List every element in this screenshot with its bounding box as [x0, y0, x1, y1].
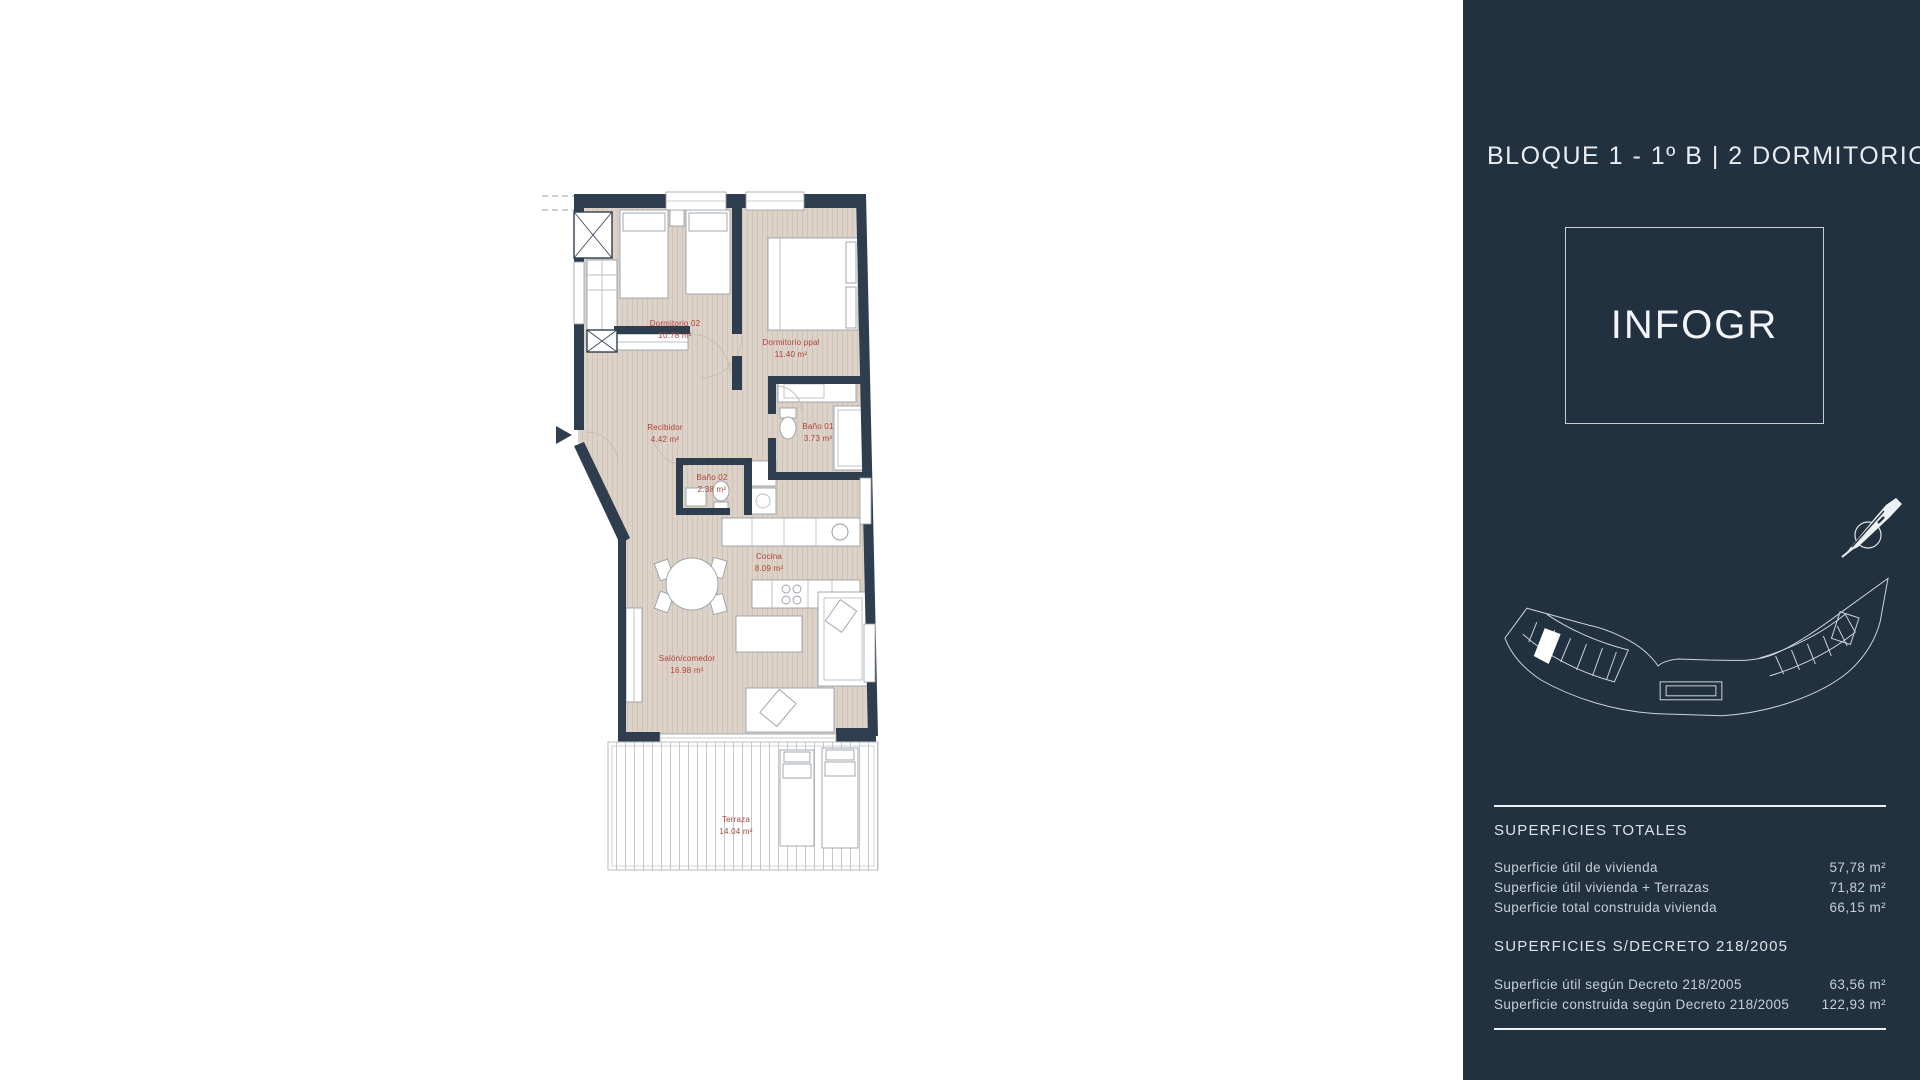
surface-value: 71,82 m² [1830, 880, 1886, 895]
section-heading-totales: SUPERFICIES TOTALES [1494, 822, 1688, 839]
terraza-deck [608, 742, 878, 870]
logo-placeholder-text: INFOGR [1611, 303, 1779, 348]
room-area: 3.73 m² [804, 434, 833, 443]
room-label: Baño 02 [696, 473, 728, 482]
room-label: Cocina [756, 552, 782, 561]
divider-top [1494, 805, 1886, 807]
room-area: 8.09 m² [755, 564, 784, 573]
surface-row: Superficie útil según Decreto 218/2005 6… [1494, 977, 1886, 992]
surface-value: 66,15 m² [1830, 900, 1886, 915]
room-label: Salón/comedor [659, 654, 716, 663]
section-heading-decreto: SUPERFICIES S/DECRETO 218/2005 [1494, 938, 1788, 955]
surface-value: 122,93 m² [1822, 997, 1886, 1012]
logo-box: INFOGR [1565, 227, 1824, 424]
surface-row: Superficie total construida vivienda 66,… [1494, 900, 1886, 915]
room-label: Recibidor [647, 423, 683, 432]
surface-value: 63,56 m² [1830, 977, 1886, 992]
surface-label: Superficie útil vivienda + Terrazas [1494, 880, 1709, 895]
room-label: Dormitorio 02 [650, 319, 701, 328]
floor-plan: Dormitorio 02 10.78 m² Dormitorio ppal 1… [540, 180, 890, 880]
surface-value: 57,78 m² [1830, 860, 1886, 875]
surface-row: Superficie construida según Decreto 218/… [1494, 997, 1886, 1012]
room-area: 10.78 m² [658, 331, 691, 340]
site-plan-sketch [1493, 570, 1891, 740]
page-title: BLOQUE 1 - 1º B | 2 DORMITORIOS [1487, 142, 1896, 171]
room-area: 16.98 m² [670, 666, 703, 675]
room-area: 4.42 m² [651, 435, 680, 444]
divider-bottom [1494, 1028, 1886, 1030]
room-label: Baño 01 [802, 422, 834, 431]
surface-label: Superficie útil de vivienda [1494, 860, 1658, 875]
room-area: 2.38 m² [698, 485, 727, 494]
info-sidebar: BLOQUE 1 - 1º B | 2 DORMITORIOS INFOGR S… [1463, 0, 1920, 1080]
pen-icon [1838, 495, 1908, 561]
room-area: 11.40 m² [775, 350, 808, 359]
surface-row: Superficie útil vivienda + Terrazas 71,8… [1494, 880, 1886, 895]
surface-row: Superficie útil de vivienda 57,78 m² [1494, 860, 1886, 875]
surface-label: Superficie útil según Decreto 218/2005 [1494, 977, 1742, 992]
entry-arrow [556, 426, 572, 444]
surface-label: Superficie construida según Decreto 218/… [1494, 997, 1789, 1012]
surface-label: Superficie total construida vivienda [1494, 900, 1717, 915]
construction-lines [542, 196, 576, 210]
room-area: 14.04 m² [719, 827, 752, 836]
brochure-page: Dormitorio 02 10.78 m² Dormitorio ppal 1… [0, 0, 1920, 1080]
room-label: Dormitorio ppal [762, 338, 819, 347]
room-label: Terraza [722, 815, 750, 824]
